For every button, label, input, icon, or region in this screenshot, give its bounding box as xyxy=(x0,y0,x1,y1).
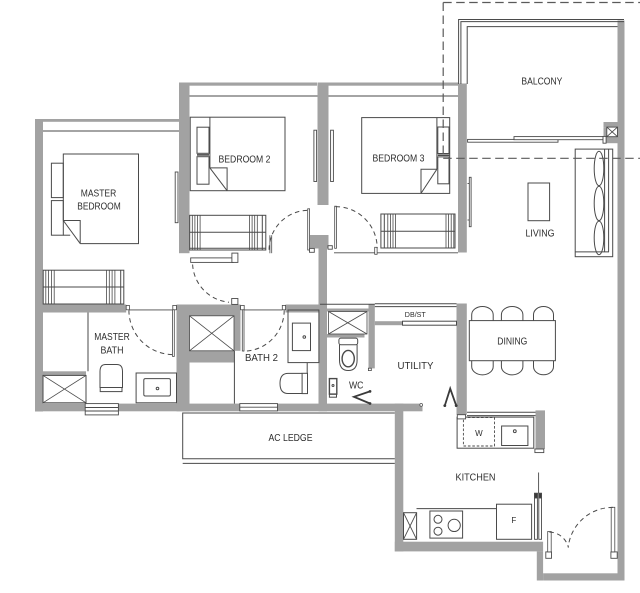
svg-text:LIVING: LIVING xyxy=(526,228,555,239)
svg-text:BEDROOM 3: BEDROOM 3 xyxy=(373,153,425,164)
svg-text:BALCONY: BALCONY xyxy=(521,77,562,88)
svg-text:WC: WC xyxy=(349,380,364,391)
svg-text:F: F xyxy=(511,516,516,525)
svg-text:DINING: DINING xyxy=(497,336,527,347)
svg-text:MASTER: MASTER xyxy=(94,332,130,343)
svg-text:BEDROOM 2: BEDROOM 2 xyxy=(219,155,271,166)
svg-text:KITCHEN: KITCHEN xyxy=(456,473,496,484)
svg-text:BATH: BATH xyxy=(101,346,124,357)
svg-text:BEDROOM: BEDROOM xyxy=(77,202,121,213)
svg-text:W: W xyxy=(475,429,483,438)
svg-text:DB/ST: DB/ST xyxy=(405,310,426,319)
svg-text:AC LEDGE: AC LEDGE xyxy=(269,433,313,444)
svg-text:BATH 2: BATH 2 xyxy=(245,353,278,364)
svg-text:MASTER: MASTER xyxy=(81,188,117,199)
svg-text:UTILITY: UTILITY xyxy=(398,361,434,372)
